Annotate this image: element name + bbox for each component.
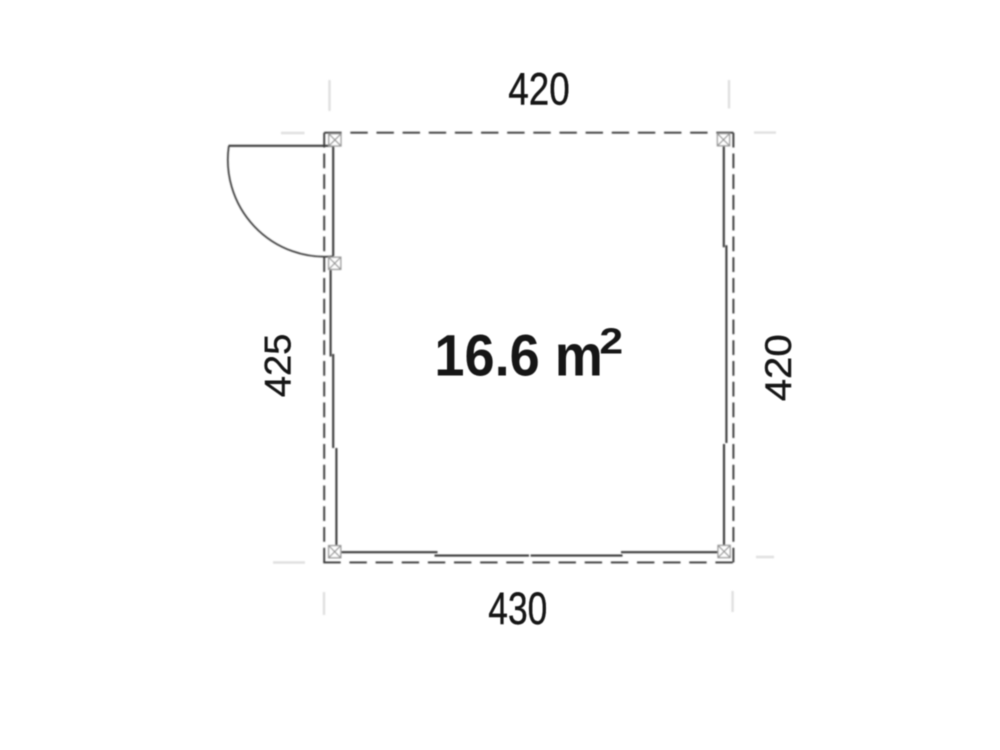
svg-text:425: 425 [258, 334, 299, 398]
svg-text:420: 420 [508, 63, 570, 114]
svg-text:420: 420 [758, 334, 799, 401]
svg-text:430: 430 [488, 583, 547, 634]
svg-text:2: 2 [599, 321, 623, 362]
svg-text:16.6 m: 16.6 m [434, 323, 603, 388]
